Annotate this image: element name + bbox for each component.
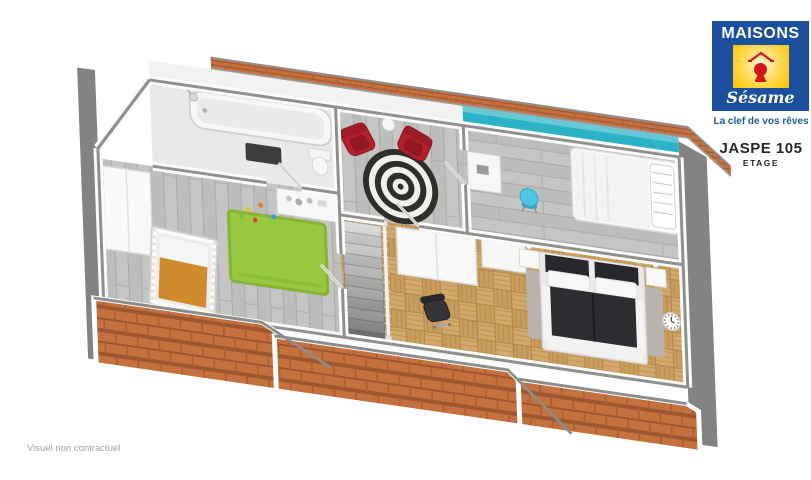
logo-brand-script: Sésame: [726, 90, 794, 106]
logo-brand-top: MAISONS: [721, 26, 799, 42]
nightstand: [646, 267, 666, 288]
green-play-rug: [228, 210, 328, 295]
laptop: [477, 165, 489, 176]
floor-label: ETAGE: [712, 158, 810, 168]
logo-tagline: La clef de vos rêves: [712, 116, 810, 127]
keyhole-icon: [754, 63, 767, 82]
plan-name: JASPE 105: [712, 140, 810, 157]
maisons-sesame-branding: MAISONS Sésame La clef de vos rêves JASP…: [712, 21, 810, 168]
keyhole-emblem: [733, 45, 789, 88]
roof-icon: [746, 51, 776, 62]
roof-slope-right: [518, 379, 700, 452]
bed-pillow: [650, 163, 676, 229]
page: MAISONS Sésame La clef de vos rêves JASP…: [0, 0, 811, 480]
logo-box: MAISONS Sésame: [712, 21, 809, 111]
floorplan-3d-render: [0, 0, 811, 480]
disclaimer-text: Visuel non contractuel: [27, 443, 120, 454]
baby-crib: [149, 226, 217, 317]
nightstand: [519, 249, 539, 270]
